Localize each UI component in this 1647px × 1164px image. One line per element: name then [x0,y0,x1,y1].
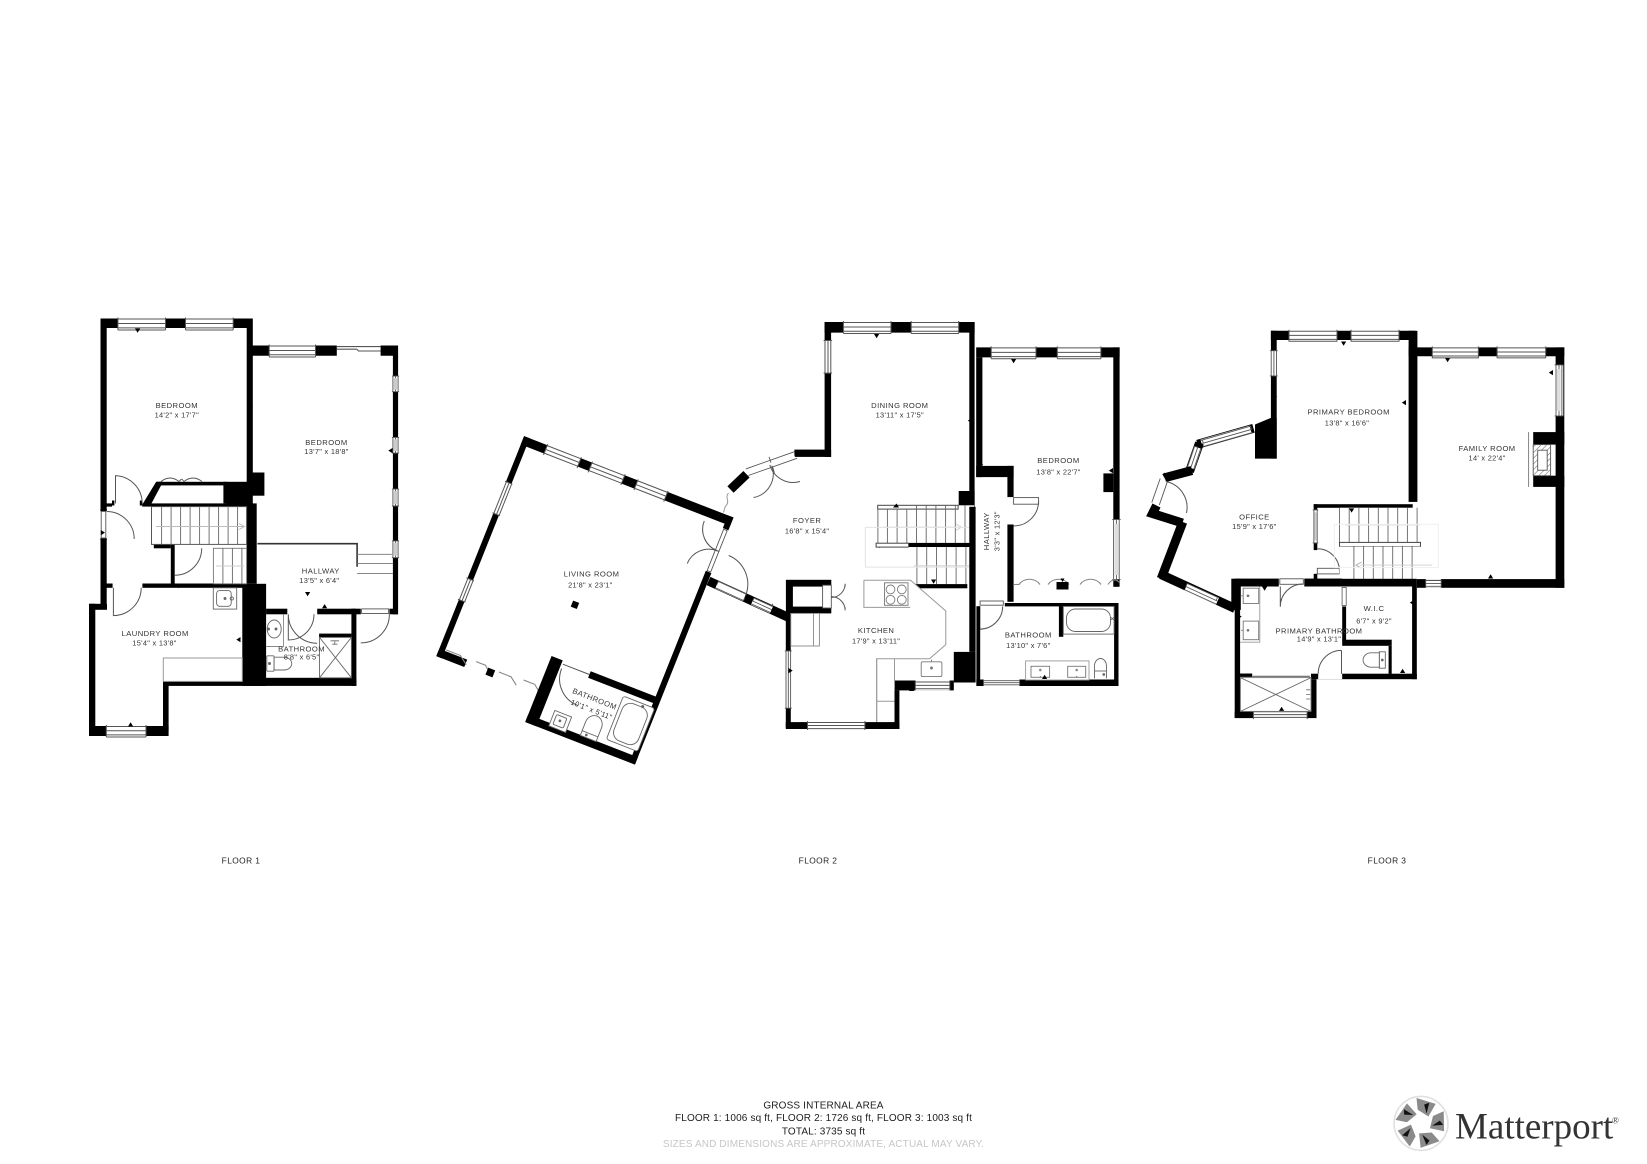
svg-text:HALLWAY: HALLWAY [302,566,340,575]
svg-text:LIVING ROOM: LIVING ROOM [564,569,620,578]
svg-text:13'8" x 22'7": 13'8" x 22'7" [1036,468,1081,477]
svg-text:GROSS INTERNAL AREA: GROSS INTERNAL AREA [763,1100,883,1111]
svg-text:BATHROOM: BATHROOM [1005,631,1052,640]
svg-text:SIZES AND DIMENSIONS ARE APPRO: SIZES AND DIMENSIONS ARE APPROXIMATE, AC… [663,1139,984,1150]
svg-text:TOTAL: 3735 sq ft: TOTAL: 3735 sq ft [782,1127,865,1138]
svg-text:13'5" x 6'4": 13'5" x 6'4" [299,576,339,585]
svg-text:13'8" x 16'6": 13'8" x 16'6" [1325,418,1370,427]
svg-text:FLOOR 1: FLOOR 1 [222,856,261,866]
svg-text:FLOOR 2: FLOOR 2 [799,856,838,866]
svg-text:13'11" x 17'5": 13'11" x 17'5" [876,411,924,420]
svg-text:6'7" x 9'2": 6'7" x 9'2" [1356,617,1392,626]
svg-text:FLOOR 3: FLOOR 3 [1368,856,1407,866]
svg-text:LAUNDRY ROOM: LAUNDRY ROOM [122,629,189,638]
svg-text:14'2" x 17'7": 14'2" x 17'7" [155,410,200,419]
svg-text:HALLWAY: HALLWAY [982,512,991,550]
svg-text:14'9" x 13'1": 14'9" x 13'1" [1297,634,1342,643]
svg-text:15'4" x 13'8": 15'4" x 13'8" [132,638,177,647]
svg-text:FOYER: FOYER [793,516,821,525]
svg-text:BEDROOM: BEDROOM [305,438,347,447]
svg-text:14' x 22'4": 14' x 22'4" [1469,454,1506,463]
svg-text:DINING ROOM: DINING ROOM [871,401,928,410]
svg-text:3'3" x 12'3": 3'3" x 12'3" [993,511,1002,551]
svg-text:FLOOR 1: 1006 sq ft, FLOOR 2:: FLOOR 1: 1006 sq ft, FLOOR 2: 1726 sq ft… [675,1113,972,1124]
svg-text:BEDROOM: BEDROOM [156,401,198,410]
svg-text:OFFICE: OFFICE [1239,512,1270,521]
svg-text:KITCHEN: KITCHEN [858,626,894,635]
svg-text:FAMILY ROOM: FAMILY ROOM [1459,444,1516,453]
svg-text:8'8" x 6'5": 8'8" x 6'5" [284,652,320,661]
svg-text:®: ® [1612,1116,1619,1126]
svg-text:21'8" x 23'1": 21'8" x 23'1" [568,581,613,590]
svg-text:PRIMARY BEDROOM: PRIMARY BEDROOM [1307,408,1389,417]
svg-text:17'9" x 13'11": 17'9" x 13'11" [852,637,900,646]
svg-text:13'10" x 7'6": 13'10" x 7'6" [1006,641,1051,650]
svg-text:BEDROOM: BEDROOM [1037,456,1079,465]
svg-text:13'7" x 18'8": 13'7" x 18'8" [304,447,349,456]
svg-text:15'9" x 17'6": 15'9" x 17'6" [1232,522,1277,531]
svg-text:16'8" x 15'4": 16'8" x 15'4" [785,526,830,535]
svg-text:Matterport: Matterport [1455,1107,1614,1148]
svg-text:W.I.C: W.I.C [1364,604,1385,613]
